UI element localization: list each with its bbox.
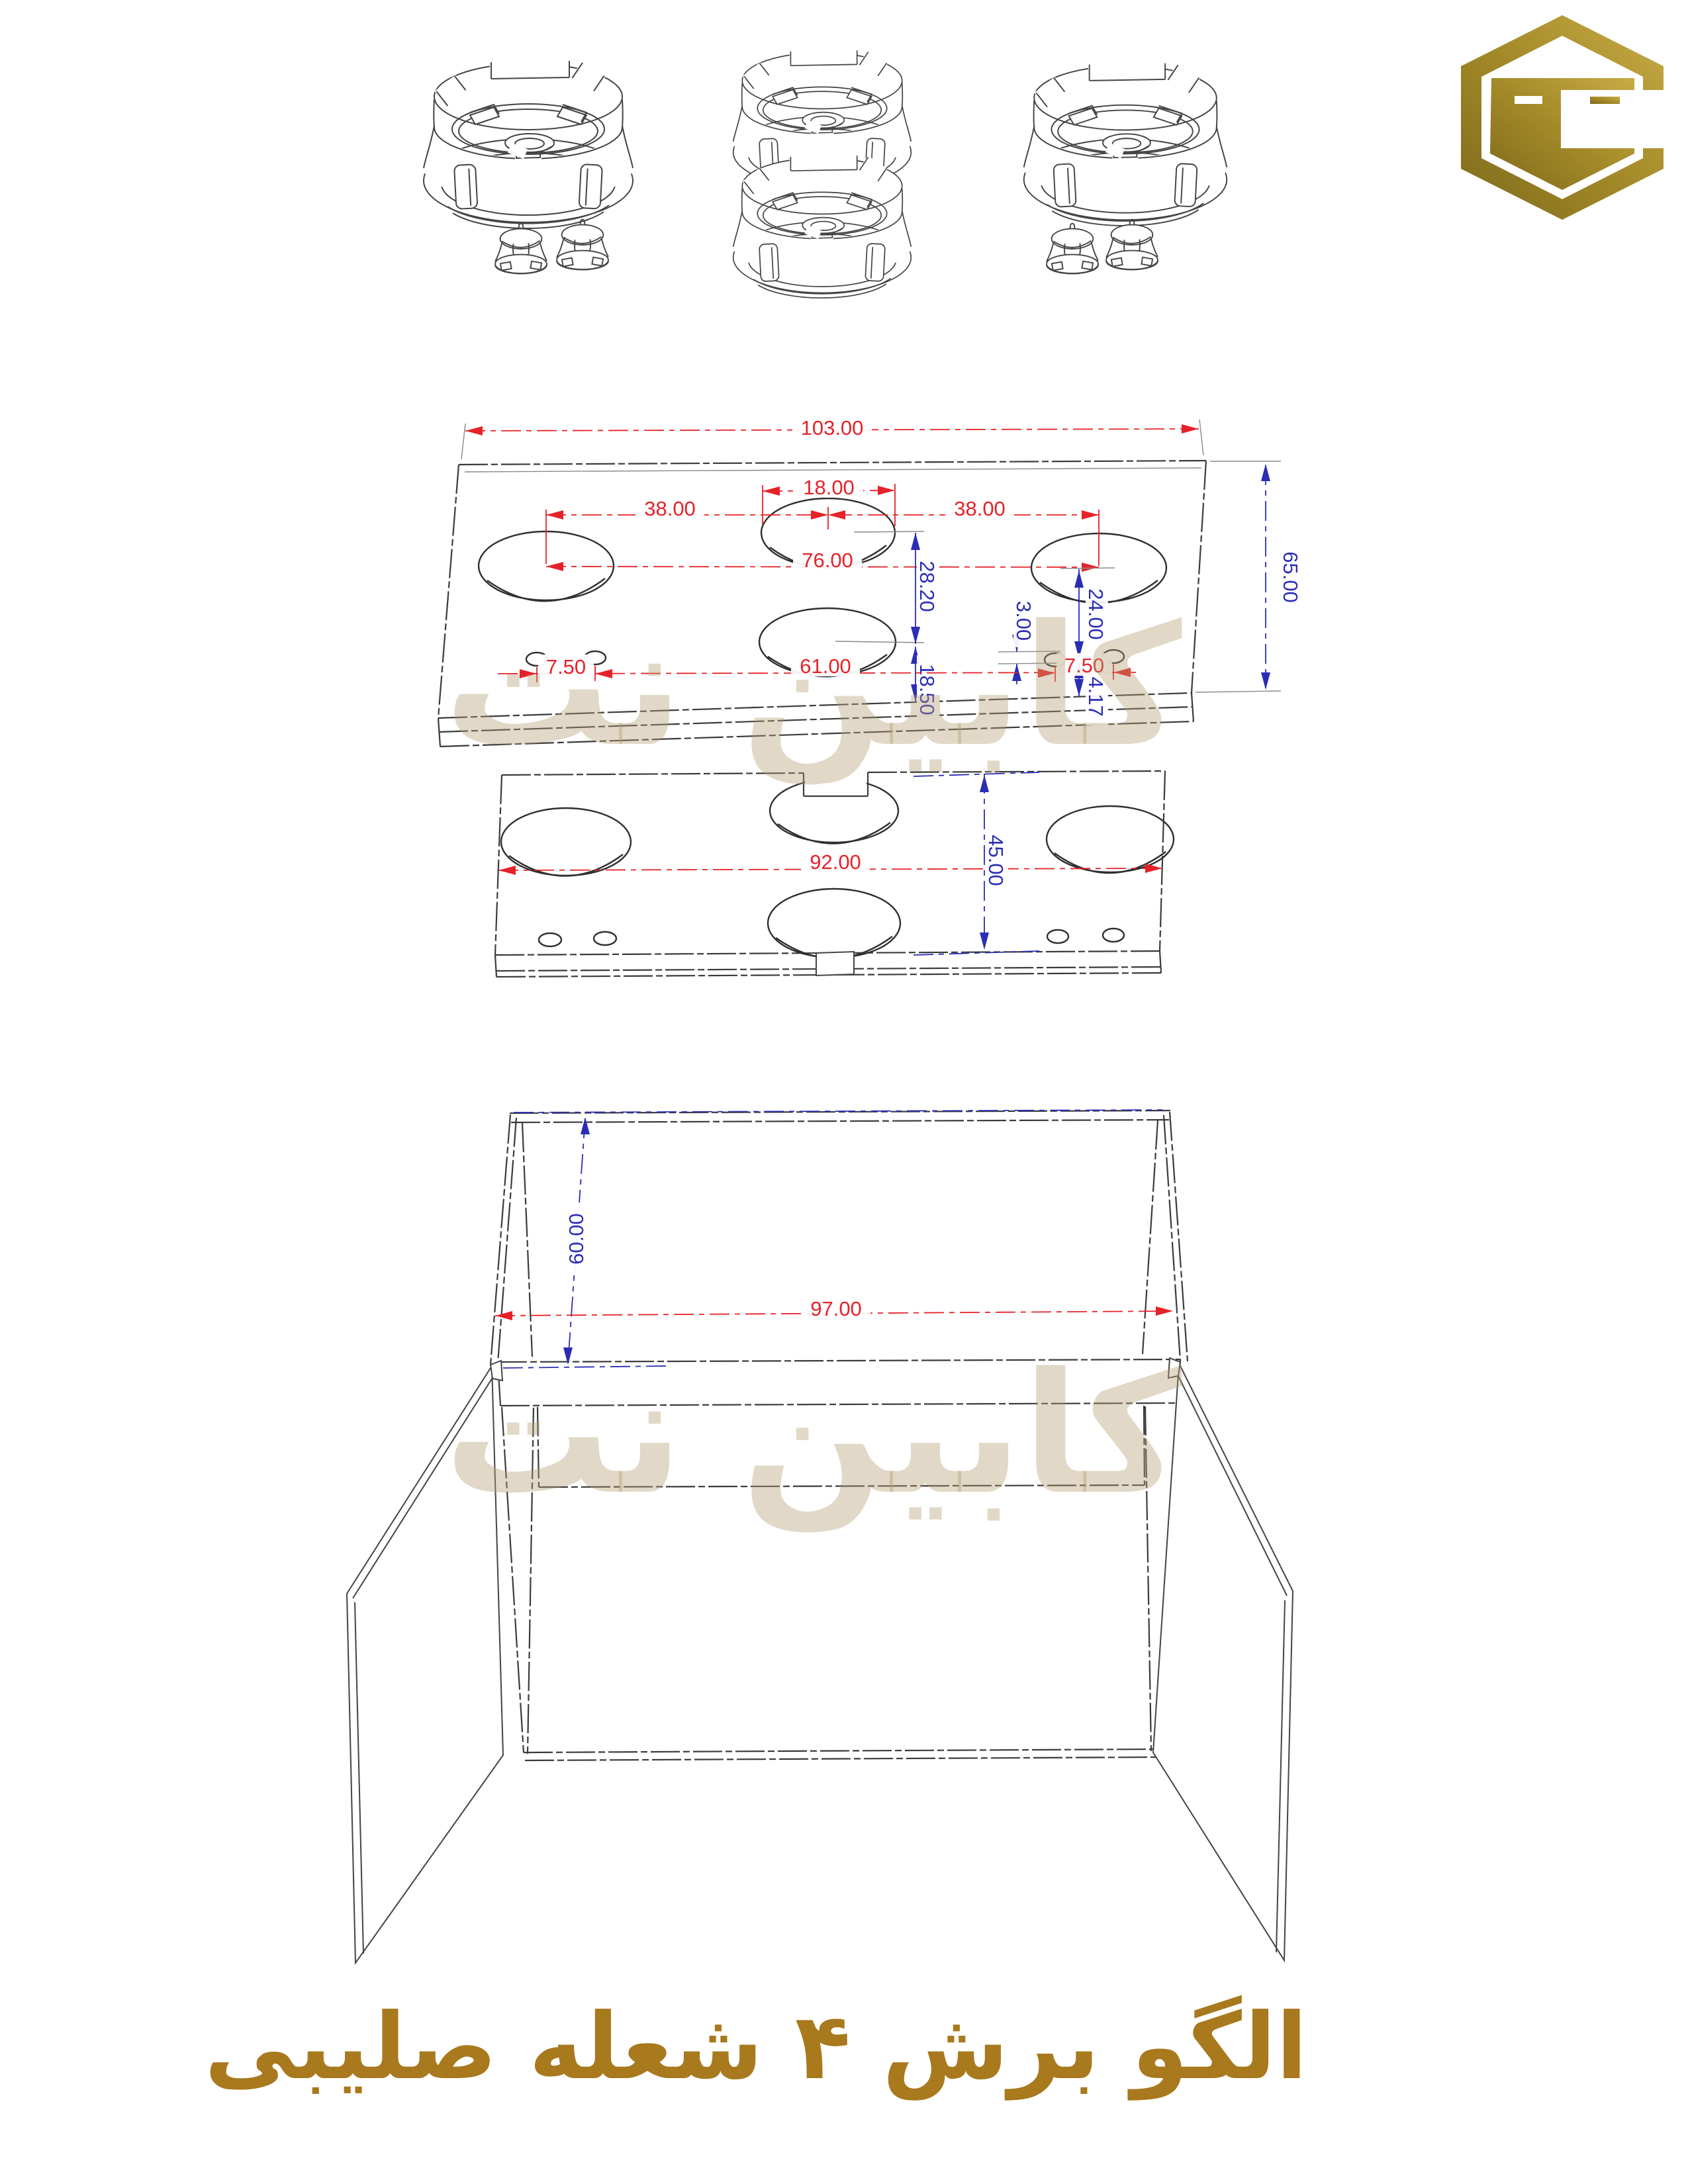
dim-center-vertical-span: 28.20: [915, 561, 939, 612]
dim-center-to-back-edge: 18.50: [915, 664, 939, 715]
top-panel-drawing: 103.00 65.00 18.00 38.00 38.00 76.00: [438, 416, 1303, 747]
dim-left-center-span: 38.00: [644, 497, 696, 520]
dim-lower-panel-depth: 45.00: [984, 835, 1008, 886]
dim-right-knob-spacing: 7.50: [1064, 654, 1104, 677]
hexagon-c-logo-icon: [1461, 15, 1684, 220]
dim-right-hole-to-knobs: 24.00: [1084, 588, 1107, 640]
dim-cabinet-width: 97.00: [810, 1297, 862, 1320]
dim-center-hole-diameter: 18.00: [803, 476, 855, 499]
cad-drawing: 103.00 65.00 18.00 38.00 38.00 76.00: [0, 0, 1688, 2184]
cabinet-drawing: 60.00 97.00: [347, 1110, 1293, 1963]
dim-top-panel-depth: 65.00: [1279, 551, 1302, 603]
dim-outer-centers-span: 76.00: [802, 549, 853, 572]
lower-panel-drawing: 92.00 45.00: [495, 771, 1174, 977]
dim-knob-row-span: 61.00: [800, 655, 851, 678]
dim-lower-panel-width: 92.00: [810, 850, 861, 874]
dim-left-knob-spacing: 7.50: [546, 655, 586, 678]
dim-right-center-span: 38.00: [954, 497, 1006, 520]
dim-knob-hole-height: 3.00: [1012, 601, 1035, 641]
dim-cabinet-height: 60.00: [565, 1213, 588, 1265]
dim-top-panel-width: 103.00: [801, 416, 864, 439]
page-title: الگو برش ۴ شعله صلیبی: [381, 1993, 1307, 2100]
drawing-page: 103.00 65.00 18.00 38.00 38.00 76.00: [0, 0, 1688, 2184]
burner-illustrations: [424, 49, 1227, 298]
